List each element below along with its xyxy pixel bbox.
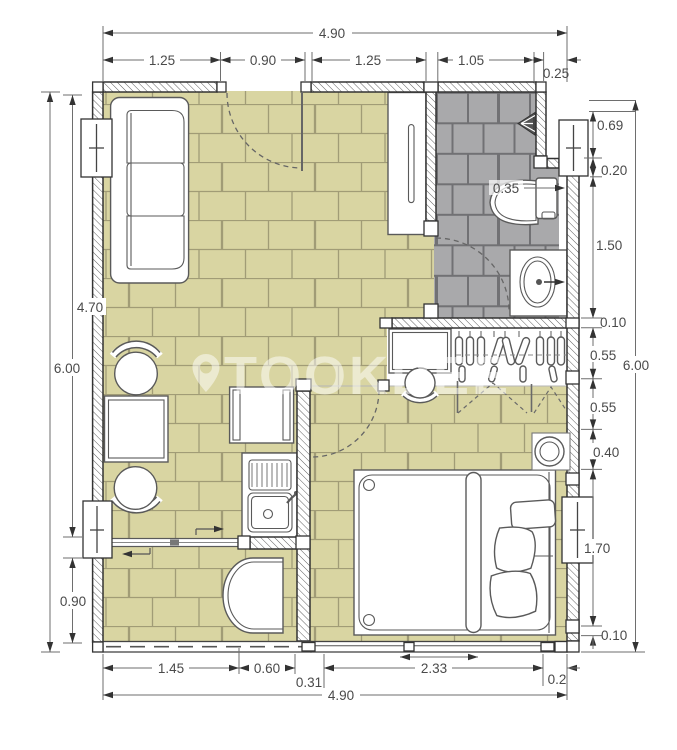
svg-text:4.90: 4.90: [319, 26, 345, 41]
svg-text:0.2: 0.2: [548, 672, 567, 687]
svg-text:6.00: 6.00: [623, 358, 649, 373]
svg-text:0.10: 0.10: [601, 628, 627, 643]
svg-text:0.90: 0.90: [60, 594, 86, 609]
svg-text:1.45: 1.45: [158, 661, 184, 676]
svg-text:1.70: 1.70: [584, 541, 610, 556]
svg-text:1.50: 1.50: [596, 238, 622, 253]
svg-text:1.05: 1.05: [458, 53, 484, 68]
svg-text:0.90: 0.90: [250, 53, 276, 68]
svg-text:6.00: 6.00: [54, 361, 80, 376]
svg-text:0.69: 0.69: [597, 118, 623, 133]
svg-text:0.35: 0.35: [493, 181, 519, 196]
svg-text:0.10: 0.10: [600, 315, 626, 330]
svg-text:0.55: 0.55: [590, 400, 616, 415]
svg-text:1.25: 1.25: [355, 53, 381, 68]
svg-text:0.25: 0.25: [543, 66, 569, 81]
svg-text:4.90: 4.90: [328, 688, 354, 703]
svg-text:1.25: 1.25: [149, 53, 175, 68]
svg-text:TOOKDEE: TOOKDEE: [224, 346, 511, 406]
svg-text:4.70: 4.70: [77, 300, 103, 315]
svg-text:0.40: 0.40: [593, 445, 619, 460]
svg-text:0.60: 0.60: [254, 661, 280, 676]
svg-text:0.31: 0.31: [296, 675, 322, 690]
svg-text:0.55: 0.55: [590, 348, 616, 363]
svg-text:2.33: 2.33: [421, 661, 447, 676]
svg-text:0.20: 0.20: [601, 163, 627, 178]
